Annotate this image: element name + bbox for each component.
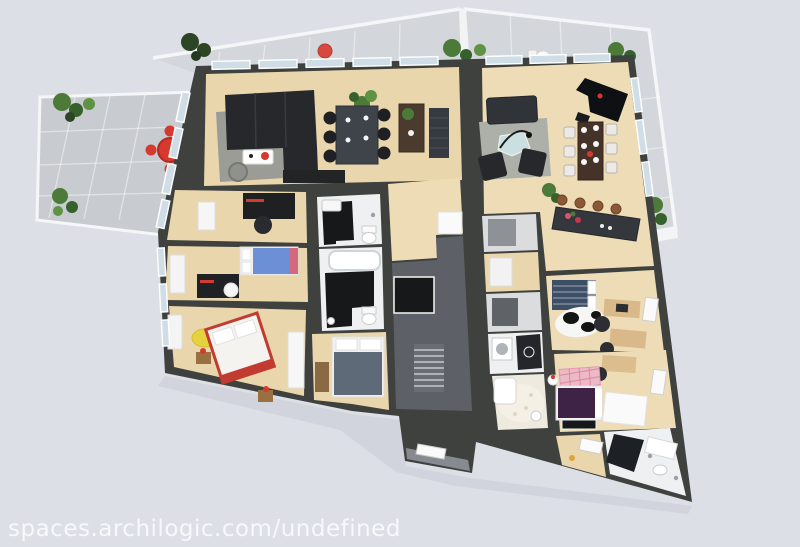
plant bbox=[53, 206, 63, 216]
toilet-tank bbox=[362, 226, 376, 233]
watermark-url: spaces.archilogic.com/undefined bbox=[8, 516, 401, 542]
plate bbox=[346, 118, 351, 123]
island-bowl bbox=[408, 130, 414, 136]
red-lamp bbox=[263, 386, 269, 392]
red-grill bbox=[318, 44, 332, 58]
island-plant bbox=[402, 108, 414, 120]
rattan-chair bbox=[229, 163, 247, 181]
hall-closet-white bbox=[438, 212, 462, 234]
dining-chair bbox=[378, 147, 391, 160]
paper-roll bbox=[224, 283, 238, 297]
stair-steps bbox=[414, 350, 444, 386]
white-radiator bbox=[642, 297, 658, 322]
plant bbox=[52, 188, 68, 204]
bar-stool bbox=[593, 201, 603, 211]
window-pane bbox=[400, 57, 438, 66]
bed-slate-duvet bbox=[334, 352, 382, 395]
toilet-tank bbox=[362, 307, 376, 314]
desk-wood bbox=[601, 355, 636, 373]
pillow bbox=[588, 296, 596, 309]
dining-chair bbox=[324, 112, 337, 125]
plant bbox=[83, 98, 95, 110]
white-wardrobe bbox=[288, 332, 304, 388]
window-pane bbox=[306, 59, 344, 68]
plate bbox=[581, 127, 587, 133]
toilet bbox=[653, 465, 667, 475]
office-chair bbox=[254, 216, 272, 234]
plate bbox=[581, 143, 587, 149]
bed-throw-pink bbox=[290, 248, 298, 274]
sideboard bbox=[283, 170, 345, 183]
bed-purple-duvet bbox=[558, 388, 595, 418]
desk-decor-red bbox=[200, 280, 214, 283]
shower-enclosure bbox=[516, 334, 542, 370]
window-pane bbox=[161, 320, 169, 346]
elevator-shaft bbox=[394, 277, 434, 313]
drain bbox=[648, 454, 652, 458]
dining-chair bbox=[564, 165, 575, 176]
window-pane bbox=[157, 248, 165, 276]
desk-decor-red bbox=[246, 199, 264, 202]
desk-wood bbox=[609, 328, 646, 348]
white-wardrobe bbox=[170, 255, 185, 293]
sofa-seam bbox=[285, 92, 286, 147]
wood-wardrobe bbox=[315, 362, 329, 392]
laptop bbox=[616, 304, 629, 313]
desk-black bbox=[243, 193, 295, 219]
plate bbox=[593, 141, 599, 147]
plant bbox=[53, 93, 71, 111]
doormat-decor bbox=[569, 455, 575, 461]
leaf bbox=[571, 212, 576, 217]
window-pane bbox=[530, 55, 566, 64]
plant bbox=[191, 51, 201, 61]
dining-chair bbox=[564, 127, 575, 138]
storage-unit-dark bbox=[492, 298, 518, 326]
red-chair bbox=[146, 145, 157, 156]
storage-unit bbox=[488, 219, 516, 246]
white-radiator bbox=[650, 369, 666, 395]
pillow bbox=[242, 249, 251, 260]
bar-stool bbox=[575, 198, 585, 208]
drain bbox=[371, 213, 375, 217]
washbasin bbox=[328, 318, 335, 325]
dining-chair bbox=[606, 143, 617, 154]
plant bbox=[365, 90, 377, 102]
speckle bbox=[513, 412, 517, 416]
table-decor bbox=[249, 154, 253, 158]
plant bbox=[443, 39, 461, 57]
pillow bbox=[588, 281, 596, 294]
sofa-seam bbox=[255, 93, 256, 148]
white-dresser bbox=[603, 392, 648, 426]
sofa-right bbox=[486, 96, 537, 125]
floorplan-viewport[interactable]: spaces.archilogic.com/undefined bbox=[0, 0, 800, 547]
plate bbox=[593, 157, 599, 163]
plant bbox=[655, 213, 667, 225]
flower bbox=[565, 213, 571, 219]
bar-glass bbox=[600, 224, 604, 228]
flower bbox=[575, 217, 581, 223]
window-pane bbox=[159, 284, 167, 312]
bar-stool bbox=[611, 204, 621, 214]
dining-chair bbox=[564, 146, 575, 157]
plate bbox=[346, 138, 351, 143]
plate bbox=[593, 125, 599, 131]
plant bbox=[65, 112, 75, 122]
dining-chair bbox=[378, 128, 391, 141]
pillow bbox=[336, 339, 357, 350]
dining-chair bbox=[606, 124, 617, 135]
washer-door bbox=[496, 343, 508, 355]
cow-patch bbox=[581, 322, 595, 332]
window-pane bbox=[212, 61, 250, 70]
dining-chair bbox=[324, 131, 337, 144]
plant bbox=[181, 33, 199, 51]
bar-glass bbox=[608, 226, 612, 230]
speckle bbox=[529, 393, 533, 397]
toilet bbox=[362, 314, 376, 325]
plate bbox=[581, 159, 587, 165]
window-pane bbox=[353, 58, 391, 67]
window-pane bbox=[486, 56, 522, 65]
storage-shelf bbox=[490, 258, 512, 286]
pillow bbox=[595, 389, 602, 417]
white-dresser bbox=[198, 202, 215, 230]
side-table bbox=[531, 411, 541, 421]
floorplan-canvas[interactable]: spaces.archilogic.com/undefined bbox=[0, 0, 800, 547]
red-lamp bbox=[200, 348, 206, 354]
window-pane bbox=[574, 54, 610, 63]
plate bbox=[364, 136, 369, 141]
dining-chair bbox=[606, 162, 617, 173]
plant bbox=[349, 92, 359, 102]
window-pane bbox=[259, 60, 297, 69]
bar-stool bbox=[557, 195, 567, 205]
dining-table-left bbox=[336, 106, 378, 164]
armchair bbox=[518, 148, 548, 178]
dining-chair bbox=[378, 109, 391, 122]
red-centerpiece bbox=[587, 151, 593, 157]
red-bowl bbox=[261, 152, 269, 160]
plant bbox=[66, 201, 78, 213]
speckle bbox=[524, 406, 528, 410]
bathtub bbox=[329, 251, 380, 270]
pillow bbox=[242, 262, 251, 273]
lamp-head bbox=[526, 132, 532, 138]
bed-blue-duvet bbox=[253, 248, 291, 274]
dining-chair bbox=[324, 150, 337, 163]
bathtub-small bbox=[494, 378, 516, 404]
office-chair bbox=[594, 316, 610, 332]
sink bbox=[322, 200, 341, 211]
red-lamp bbox=[551, 375, 555, 379]
cow-patch bbox=[563, 312, 579, 324]
pillow bbox=[360, 339, 381, 350]
kitchen-cabinet-tall bbox=[429, 108, 449, 158]
drain bbox=[674, 476, 678, 480]
black-runner-rug bbox=[562, 420, 596, 429]
toilet bbox=[362, 233, 376, 244]
plate bbox=[364, 116, 369, 121]
plant bbox=[474, 44, 486, 56]
piano-decor-red bbox=[598, 94, 603, 99]
